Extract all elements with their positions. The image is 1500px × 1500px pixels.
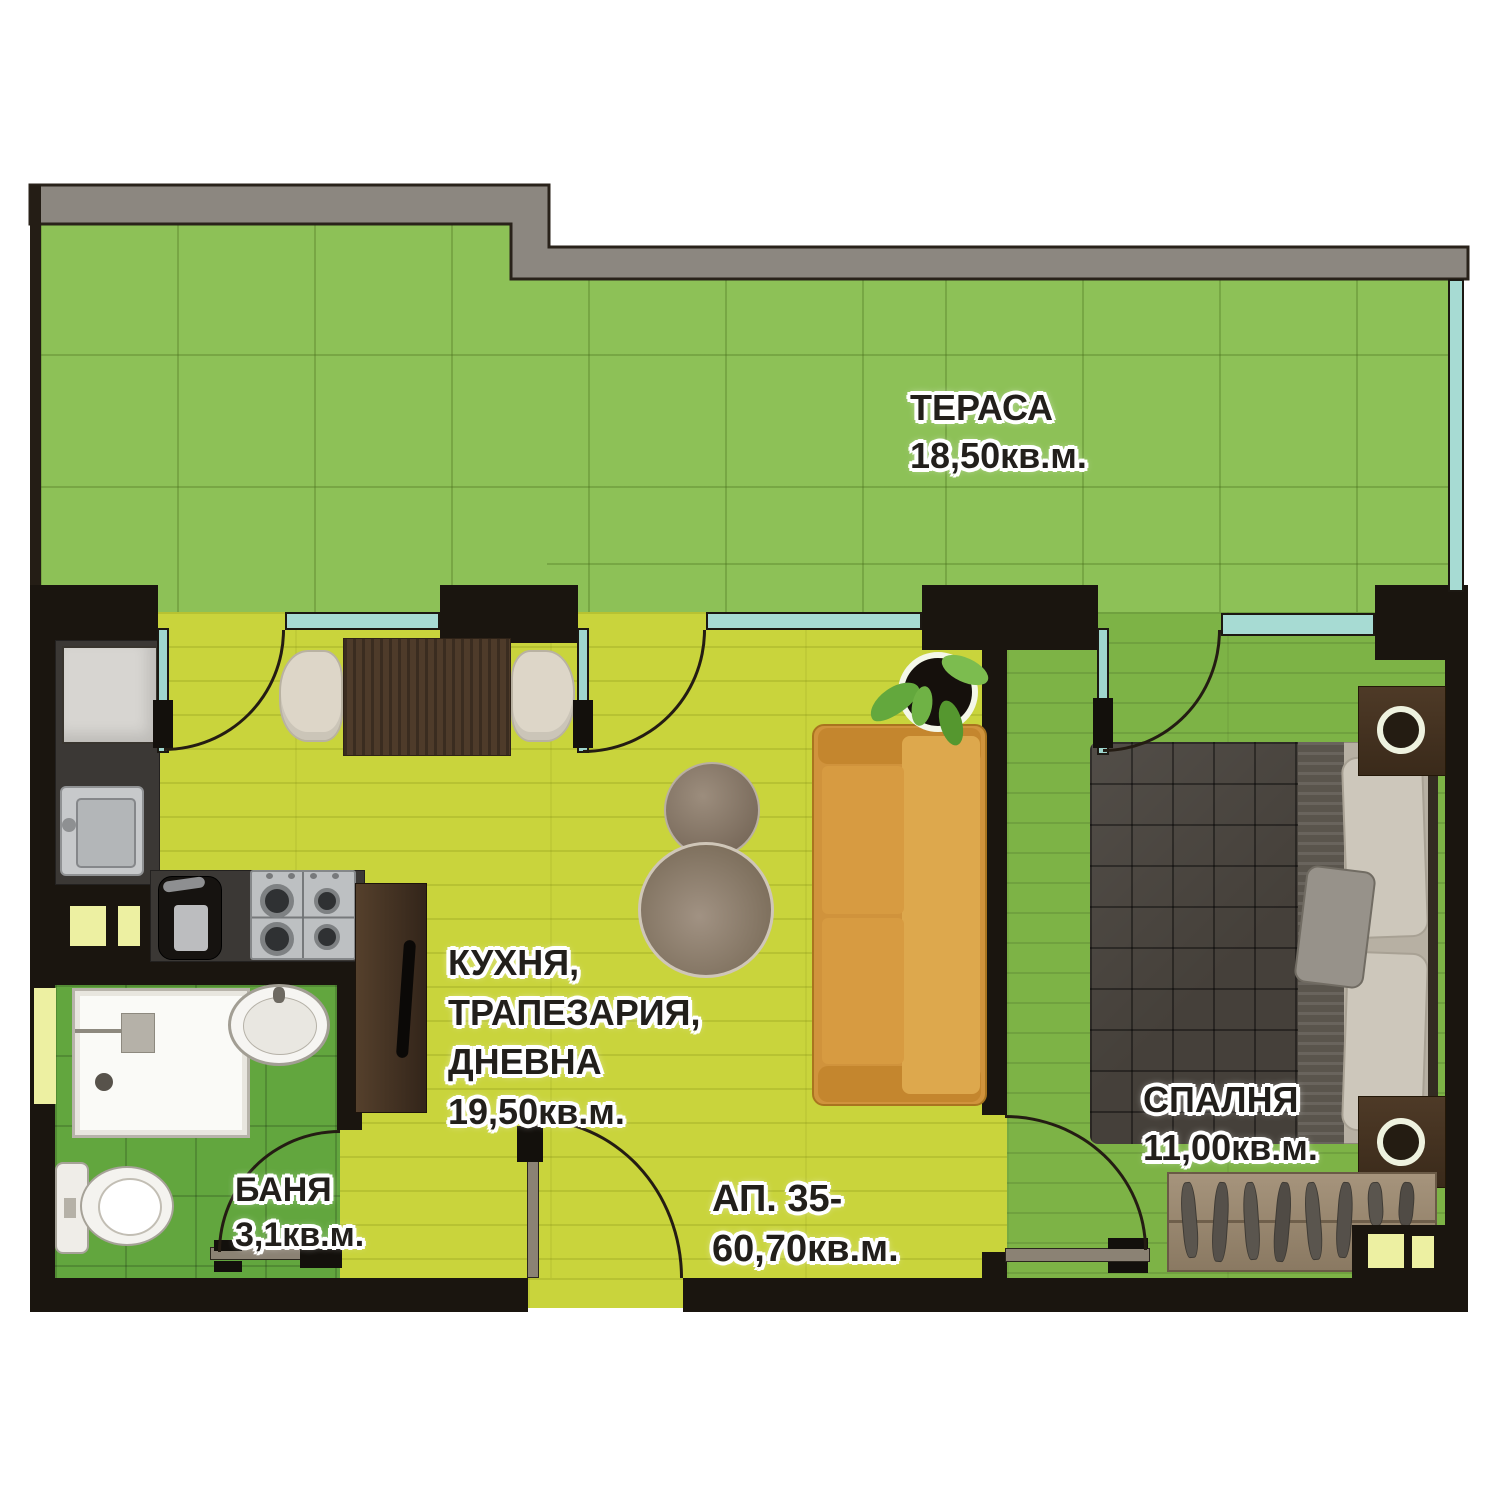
wall-right xyxy=(1445,650,1468,1312)
stove-knob xyxy=(310,873,317,879)
kitchen-living-label: КУХНЯ, ТРАПЕЗАРИЯ, ДНЕВНА 19,50кв.м. xyxy=(448,938,701,1137)
dining-table-icon xyxy=(343,638,511,756)
apartment-label: АП. 35- 60,70кв.м. xyxy=(712,1174,899,1274)
door-stop xyxy=(214,1261,242,1272)
burner-icon xyxy=(314,924,340,950)
bathroom-name: БАНЯ xyxy=(235,1171,332,1209)
kitchen-living-area: 19,50кв.м. xyxy=(448,1091,625,1132)
terrace-label: ТЕРАСА 18,50кв.м. xyxy=(910,384,1087,479)
shaft-bedroom-1 xyxy=(1368,1234,1404,1268)
kitchen-sink-icon xyxy=(60,786,144,876)
shower-head-icon xyxy=(121,1013,155,1053)
lamp-icon xyxy=(1377,706,1425,754)
bed-headboard xyxy=(1428,748,1438,1138)
lamp-icon xyxy=(1377,1118,1425,1166)
wall-bottom-right xyxy=(683,1278,1468,1312)
coffee-machine-handle xyxy=(162,876,205,893)
tall-cabinet-icon xyxy=(355,883,427,1113)
burner-icon xyxy=(260,884,294,918)
sofa-icon xyxy=(812,724,987,1106)
shaft-bathroom xyxy=(34,988,56,1104)
shower-pipe xyxy=(75,1029,127,1033)
bathroom-label: БАНЯ 3,1кв.м. xyxy=(235,1168,364,1258)
shower-drain xyxy=(95,1073,113,1091)
floor-plan: ТЕРАСА 18,50кв.м. КУХНЯ, ТРАПЕЗАРИЯ, ДНЕ… xyxy=(0,0,1500,1500)
washbasin-icon xyxy=(228,984,330,1066)
sink-basin xyxy=(76,798,136,868)
stove-knob xyxy=(288,873,295,879)
wall-terrace-s2 xyxy=(440,585,578,643)
dining-chair-icon xyxy=(279,650,343,742)
shaft-kitchen-2 xyxy=(118,906,140,946)
terrace-name: ТЕРАСА xyxy=(910,387,1053,428)
wall-terrace-s3 xyxy=(922,585,1098,650)
shaft-bedroom-2 xyxy=(1412,1236,1434,1268)
bed-pillow-small xyxy=(1293,864,1377,990)
basin-faucet-icon xyxy=(273,987,285,1003)
toilet-seat xyxy=(98,1178,162,1236)
bedroom-name: СПАЛНЯ xyxy=(1143,1079,1298,1120)
window-terrace-1 xyxy=(285,612,440,630)
bedroom-label: СПАЛНЯ 11,00кв.м. xyxy=(1143,1076,1318,1171)
basin-bowl xyxy=(243,997,317,1055)
door-stop xyxy=(1108,1262,1148,1273)
shower-icon xyxy=(72,988,250,1138)
terrace-area: 18,50кв.м. xyxy=(910,435,1087,476)
burner-icon xyxy=(314,888,340,914)
wardrobe-rail xyxy=(1169,1220,1435,1223)
apartment-number: АП. 35- xyxy=(712,1178,842,1220)
wall-terrace-s4 xyxy=(1375,585,1468,660)
coffee-machine-front xyxy=(174,905,208,951)
bedroom-area: 11,00кв.м. xyxy=(1143,1127,1318,1168)
cabinet-handle xyxy=(396,940,416,1059)
dining-chair-icon xyxy=(511,650,575,742)
wall-bottom-left xyxy=(30,1278,528,1312)
toilet-bowl-icon xyxy=(80,1166,174,1246)
sofa-seat-cushion xyxy=(822,766,904,914)
sofa-seat-cushion xyxy=(822,918,904,1064)
kitchen-living-name-line1: КУХНЯ, xyxy=(448,942,579,983)
window-bedroom xyxy=(1221,613,1375,636)
fridge-icon xyxy=(62,646,158,744)
kitchen-living-name-line3: ДНЕВНА xyxy=(448,1041,602,1082)
sink-faucet-icon xyxy=(62,818,76,832)
apartment-area: 60,70кв.м. xyxy=(712,1228,899,1270)
shaft-kitchen-1 xyxy=(70,906,106,946)
kitchen-living-name-line2: ТРАПЕЗАРИЯ, xyxy=(448,992,701,1033)
stove-knob xyxy=(266,873,273,879)
coffee-machine-icon xyxy=(158,876,222,960)
gas-stove-icon xyxy=(250,870,356,960)
bathroom-area: 3,1кв.м. xyxy=(235,1216,364,1254)
bedroom-door-leaf xyxy=(1005,1248,1150,1262)
window-terrace-2 xyxy=(706,612,922,630)
sofa-backrest xyxy=(902,736,980,1094)
stove-knob xyxy=(332,873,339,879)
window-terrace-right xyxy=(1448,279,1464,592)
burner-icon xyxy=(260,922,294,956)
nightstand-icon xyxy=(1358,686,1446,776)
toilet-flush-button xyxy=(64,1198,76,1218)
